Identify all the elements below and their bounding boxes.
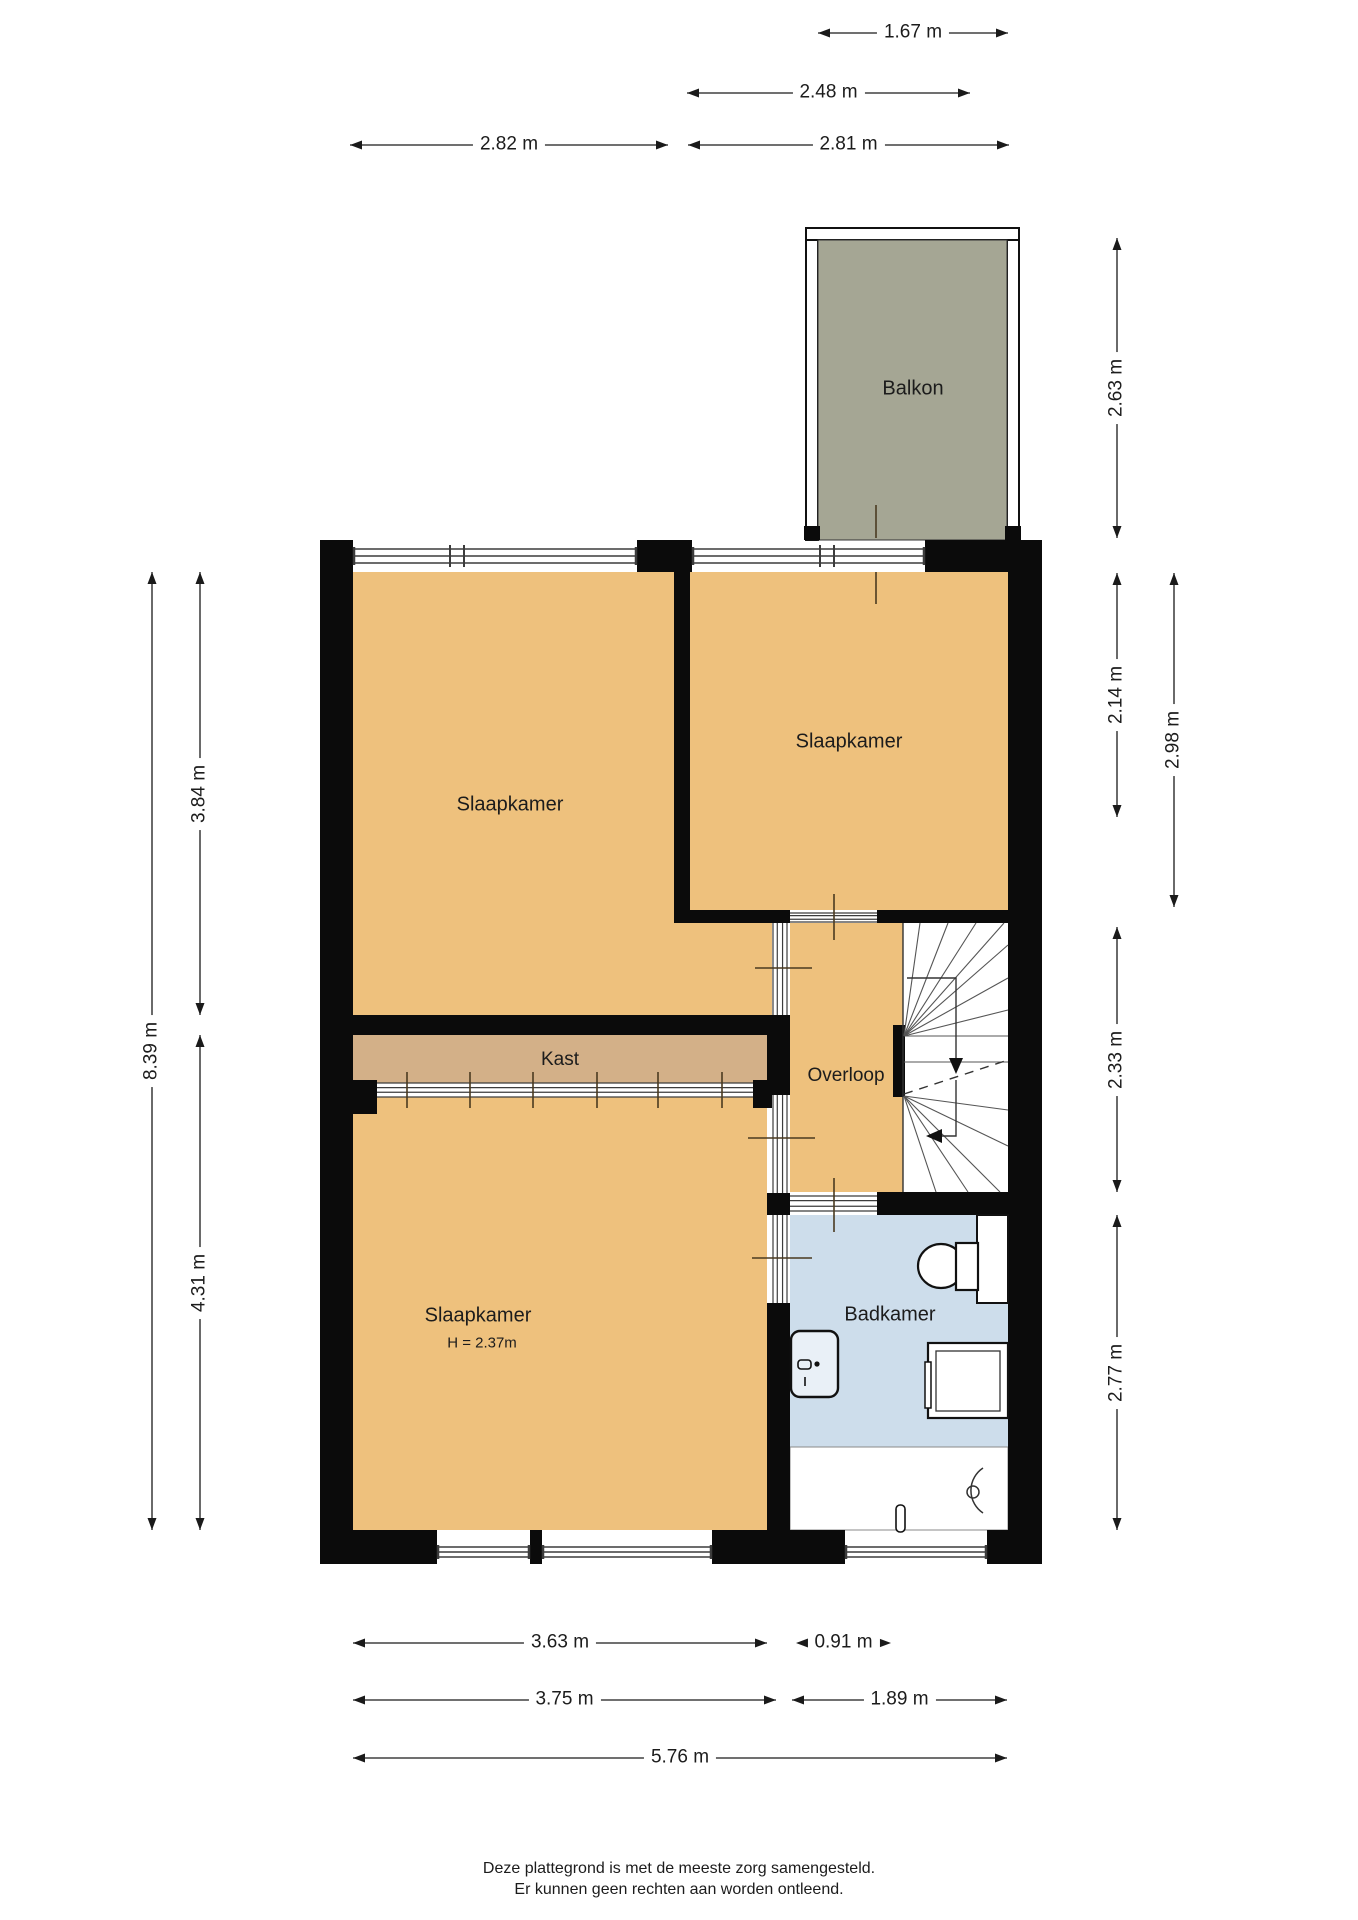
room-slaapkamer-left: [353, 572, 674, 1015]
footer-line-1: Deze plattegrond is met de meeste zorg s…: [0, 1858, 1358, 1879]
dim-h-375m-arrow-left: [353, 1696, 365, 1705]
wall-segment-9: [674, 572, 690, 923]
wall-segment-7: [712, 1530, 845, 1564]
toilet-tank: [956, 1243, 978, 1290]
shower-handle-strip: [925, 1362, 931, 1408]
balcony-floor: [818, 240, 1007, 540]
footer-disclaimer: Deze plattegrond is met de meeste zorg s…: [0, 1858, 1358, 1900]
dim-v-431m-arrow-top: [196, 1035, 205, 1047]
room-slaapkamer-right: [690, 572, 1008, 910]
dim-h-091m-arrow-right: [879, 1639, 891, 1648]
floorplan-canvas: 1.67 m2.48 m2.82 m2.81 m3.63 m0.91 m3.75…: [0, 0, 1358, 1920]
dim-h-363m-arrow-left: [353, 1639, 365, 1648]
wall-segment-15: [767, 1303, 790, 1530]
dim-h-576m-arrow-right: [995, 1754, 1007, 1763]
dim-h-281m-arrow-left: [688, 141, 700, 150]
room-slaapkamer-bottom: [353, 1097, 767, 1530]
dim-h-576m-arrow-left: [353, 1754, 365, 1763]
dim-v-233m-arrow-bottom: [1113, 1180, 1122, 1192]
wall-segment-5: [320, 1530, 437, 1564]
dim-v-233m-arrow-top: [1113, 927, 1122, 939]
footer-line-2: Er kunnen geen rechten aan worden ontlee…: [0, 1879, 1358, 1900]
dim-h-091m-arrow-left: [796, 1639, 808, 1648]
wall-segment-14: [767, 1193, 790, 1215]
balcony-rail-1: [1007, 228, 1019, 540]
opening-passage-overloop: [772, 923, 788, 1015]
door-slaapkamer-overloop: [772, 1095, 788, 1193]
dim-v-839m-arrow-bottom: [148, 1518, 157, 1530]
dim-v-214m-arrow-top: [1113, 573, 1122, 585]
dim-v-263m-arrow-bottom: [1113, 526, 1122, 538]
dim-v-839m-arrow-top: [148, 572, 157, 584]
dim-v-384m-arrow-top: [196, 572, 205, 584]
room-slaapkamer-left-passage: [674, 923, 772, 1015]
dim-h-282m-arrow-right: [656, 141, 668, 150]
wall-segment-4: [1008, 540, 1042, 1564]
wall-segment-18: [877, 1192, 1008, 1215]
wall-segment-12: [353, 1015, 770, 1035]
door-handle-stub: [896, 1505, 905, 1532]
dim-v-277m-arrow-top: [1113, 1215, 1122, 1227]
dim-v-298m-arrow-bottom: [1170, 895, 1179, 907]
wall-segment-8: [987, 1530, 1042, 1564]
floorplan-drawing: [0, 0, 1358, 1920]
balcony-rail-foot-1: [1005, 526, 1021, 540]
wall-segment-6: [530, 1530, 542, 1564]
dim-h-189m-arrow-right: [995, 1696, 1007, 1705]
dim-v-384m-arrow-bottom: [196, 1003, 205, 1015]
dim-v-298m-arrow-top: [1170, 573, 1179, 585]
room-kast: [353, 1035, 767, 1083]
door-slaapkamer-badkamer: [772, 1215, 788, 1303]
dim-h-281m-arrow-right: [997, 141, 1009, 150]
sink-faucet: [798, 1360, 811, 1369]
dim-h-248m-arrow-left: [687, 89, 699, 98]
dim-h-363m-arrow-right: [755, 1639, 767, 1648]
wall-segment-3: [320, 540, 353, 1564]
room-overloop: [790, 923, 903, 1192]
dim-h-167m-arrow-right: [996, 29, 1008, 38]
dim-h-189m-arrow-left: [792, 1696, 804, 1705]
dim-v-431m-arrow-bottom: [196, 1518, 205, 1530]
shower-inner: [936, 1351, 1000, 1411]
wall-segment-16: [353, 1080, 377, 1114]
toilet-niche: [977, 1215, 1008, 1303]
dim-h-282m-arrow-left: [350, 141, 362, 150]
dim-v-263m-arrow-top: [1113, 238, 1122, 250]
balcony-rail-2: [806, 228, 1019, 240]
balcony-rail-0: [806, 228, 818, 540]
balcony-rail-foot-0: [804, 526, 820, 540]
dim-v-214m-arrow-bottom: [1113, 805, 1122, 817]
dim-h-248m-arrow-right: [958, 89, 970, 98]
kast-track: [377, 1083, 753, 1097]
wall-segment-11: [877, 910, 1008, 923]
dim-h-167m-arrow-left: [818, 29, 830, 38]
sink-faucet-dot: [814, 1361, 819, 1366]
wall-segment-10: [674, 910, 790, 923]
dim-v-277m-arrow-bottom: [1113, 1518, 1122, 1530]
dim-h-375m-arrow-right: [764, 1696, 776, 1705]
wall-segment-1: [637, 540, 692, 572]
